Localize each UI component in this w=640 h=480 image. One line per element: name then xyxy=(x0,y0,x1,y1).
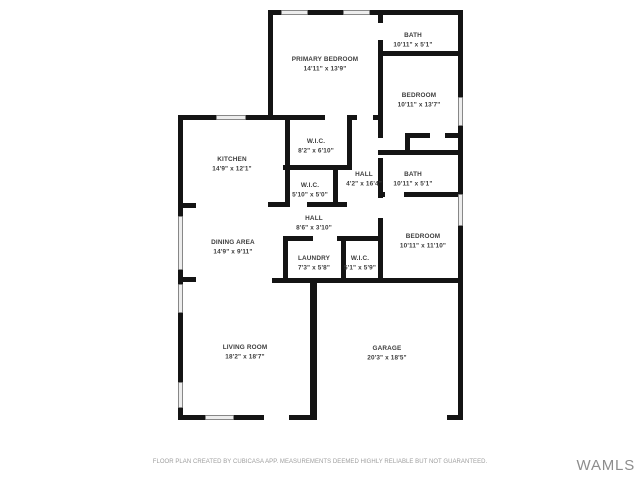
room-name: PRIMARY BEDROOM xyxy=(292,56,359,63)
wall-segment xyxy=(310,278,317,420)
room-label-wic-lower: W.I.C.5'1" x 5'9" xyxy=(344,255,376,272)
wall-segment xyxy=(347,115,352,170)
room-name: HALL xyxy=(305,215,323,222)
room-name: W.I.C. xyxy=(301,182,319,189)
room-dimensions: 20'3" x 18'5" xyxy=(367,355,406,362)
room-name: W.I.C. xyxy=(351,255,369,262)
room-dimensions: 4'2" x 16'4" xyxy=(346,181,382,188)
wall-segment xyxy=(341,238,346,283)
window xyxy=(344,11,370,15)
wall-segment xyxy=(285,115,290,207)
room-label-bath-middle: BATH10'11" x 5'1" xyxy=(393,171,432,188)
window xyxy=(179,217,183,270)
room-dimensions: 10'11" x 11'10" xyxy=(400,243,446,250)
room-label-bedroom-right: BEDROOM10'11" x 13'7" xyxy=(398,92,441,109)
wall-segment xyxy=(333,167,338,207)
wall-segment xyxy=(405,133,410,155)
window xyxy=(206,416,234,420)
room-name: W.I.C. xyxy=(307,138,325,145)
room-name: DINING AREA xyxy=(211,239,255,246)
room-name: LIVING ROOM xyxy=(223,344,268,351)
wall-segment xyxy=(268,10,273,120)
room-label-primary-bedroom: PRIMARY BEDROOM14'11" x 13'9" xyxy=(292,56,359,73)
wall-segment xyxy=(178,115,325,120)
room-label-bath-top: BATH10'11" x 5'1" xyxy=(393,32,432,49)
wall-segment xyxy=(283,238,288,283)
floor-plan: PRIMARY BEDROOM14'11" x 13'9"BATH10'11" … xyxy=(0,0,640,480)
window xyxy=(459,98,463,126)
window xyxy=(217,116,246,120)
room-label-laundry: LAUNDRY7'3" x 5'8" xyxy=(298,255,331,272)
wamls-watermark: WAMLS xyxy=(577,457,635,474)
room-label-kitchen: KITCHEN14'9" x 12'1" xyxy=(212,156,251,173)
wall-segment xyxy=(307,202,347,207)
room-dimensions: 18'2" x 18'7" xyxy=(225,354,264,361)
wall-segment xyxy=(378,150,463,155)
room-label-living-room: LIVING ROOM18'2" x 18'7" xyxy=(223,344,268,361)
wall-segment xyxy=(378,158,383,198)
room-label-hall-lower: HALL8'6" x 3'10" xyxy=(296,215,332,232)
room-label-garage: GARAGE20'3" x 18'5" xyxy=(367,345,406,362)
room-name: BEDROOM xyxy=(402,92,436,99)
room-dimensions: 8'6" x 3'10" xyxy=(296,225,332,232)
window xyxy=(459,195,463,226)
room-label-hall-vertical: HALL4'2" x 16'4" xyxy=(346,171,382,188)
room-name: HALL xyxy=(355,171,373,178)
room-label-dining-area: DINING AREA14'9" x 9'11" xyxy=(211,239,255,256)
window xyxy=(282,11,308,15)
room-label-wic-middle: W.I.C.5'10" x 5'0" xyxy=(292,182,328,199)
wall-segment xyxy=(378,218,383,283)
room-label-wic-primary: W.I.C.8'2" x 6'10" xyxy=(298,138,334,155)
wall-segment xyxy=(272,278,463,283)
room-dimensions: 10'11" x 5'1" xyxy=(393,42,432,49)
room-dimensions: 10'11" x 13'7" xyxy=(398,102,441,109)
window xyxy=(179,383,183,408)
room-label-bedroom-lower: BEDROOM10'11" x 11'10" xyxy=(400,233,446,250)
wall-segment xyxy=(378,10,383,23)
wall-segment xyxy=(404,192,463,197)
room-name: LAUNDRY xyxy=(298,255,331,262)
room-name: GARAGE xyxy=(373,345,403,352)
room-dimensions: 5'1" x 5'9" xyxy=(344,265,376,272)
wall-segment xyxy=(408,133,430,138)
wall-segment xyxy=(378,40,383,138)
room-dimensions: 14'11" x 13'9" xyxy=(304,66,347,73)
room-name: KITCHEN xyxy=(217,156,247,163)
room-dimensions: 10'11" x 5'1" xyxy=(393,181,432,188)
footer-disclaimer: FLOOR PLAN CREATED BY CUBICASA APP. MEAS… xyxy=(0,459,640,465)
room-dimensions: 7'3" x 5'8" xyxy=(298,265,330,272)
wall-segment xyxy=(283,165,350,170)
window xyxy=(179,285,183,313)
room-dimensions: 14'9" x 12'1" xyxy=(212,166,251,173)
room-name: BATH xyxy=(404,32,422,39)
room-dimensions: 5'10" x 5'0" xyxy=(292,192,328,199)
room-dimensions: 8'2" x 6'10" xyxy=(298,148,334,155)
room-dimensions: 14'9" x 9'11" xyxy=(213,249,252,256)
room-name: BEDROOM xyxy=(406,233,440,240)
wall-segment xyxy=(378,51,463,56)
room-name: BATH xyxy=(404,171,422,178)
